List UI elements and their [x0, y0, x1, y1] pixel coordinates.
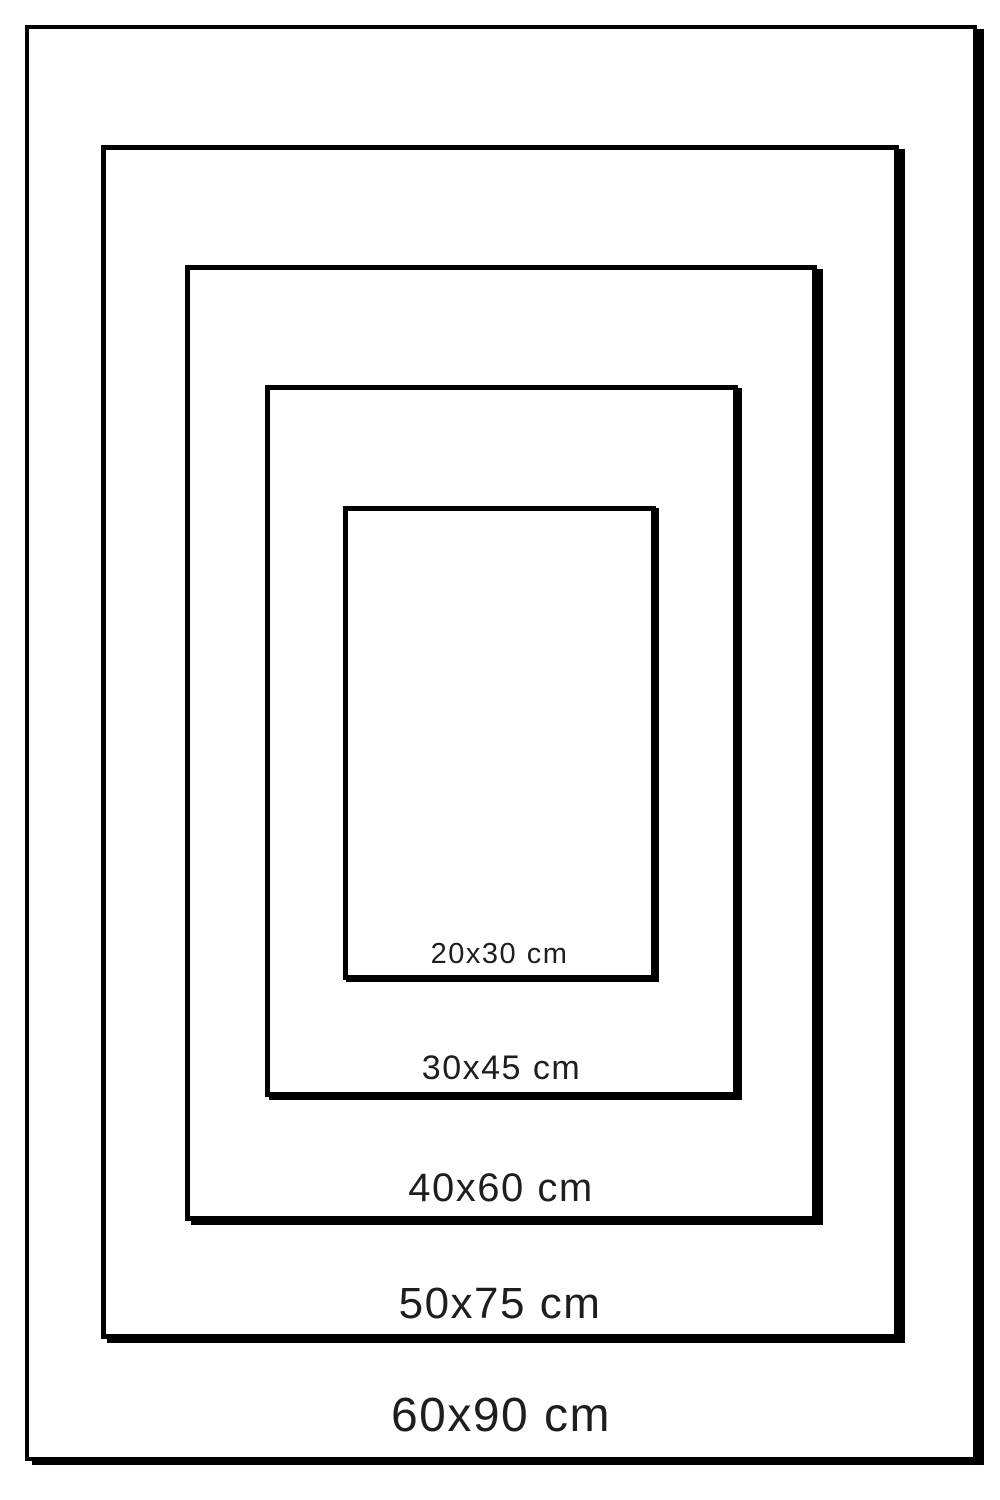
frame-50x75-label: 50x75 cm — [106, 1279, 894, 1329]
frame-20x30: 20x30 cm — [343, 506, 656, 980]
frame-30x45-label: 30x45 cm — [270, 1049, 733, 1088]
poster-size-comparison-diagram: 60x90 cm 50x75 cm 40x60 cm 30x45 cm 20x3… — [0, 0, 1000, 1500]
frame-40x60-label: 40x60 cm — [190, 1166, 812, 1211]
frame-60x90-label: 60x90 cm — [29, 1388, 973, 1443]
frame-20x30-label: 20x30 cm — [348, 938, 651, 971]
